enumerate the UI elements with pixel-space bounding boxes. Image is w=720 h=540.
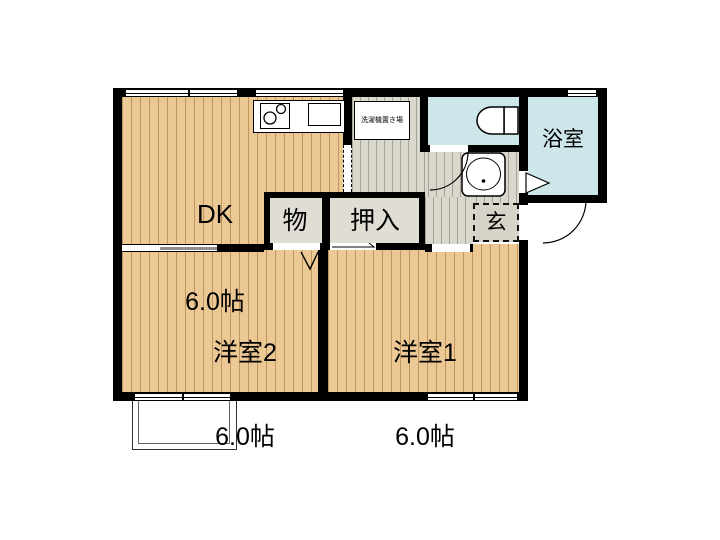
folding-door-icon <box>301 252 318 269</box>
bath-label: 浴室 <box>528 128 598 152</box>
bath-door-icon <box>526 173 549 193</box>
room-dk-name: DK <box>155 200 275 229</box>
genkan-label: 玄 <box>475 211 517 235</box>
closet-mono-label: 物 <box>266 207 324 235</box>
washbasin-icon <box>462 153 505 196</box>
room-western1-size: 6.0帖 <box>330 423 520 451</box>
closet-oshiire-label: 押入 <box>327 207 423 235</box>
room-western1-name: 洋室1 <box>330 339 520 367</box>
room-western2-label: 洋室2 6.0帖 <box>150 283 340 507</box>
room-western2-name: 洋室2 <box>150 339 340 367</box>
oshiire-track-arrow-icon <box>332 243 374 247</box>
room-western2-size: 6.0帖 <box>150 423 340 451</box>
room-western1-label: 洋室1 6.0帖 <box>330 283 520 507</box>
stove-burners-icon <box>264 105 286 125</box>
floor-plan: 洗濯機置き場 DK 6.0帖 洋室2 <box>0 0 720 540</box>
door-arc-entrance <box>543 200 586 243</box>
toilet-icon <box>477 107 518 134</box>
